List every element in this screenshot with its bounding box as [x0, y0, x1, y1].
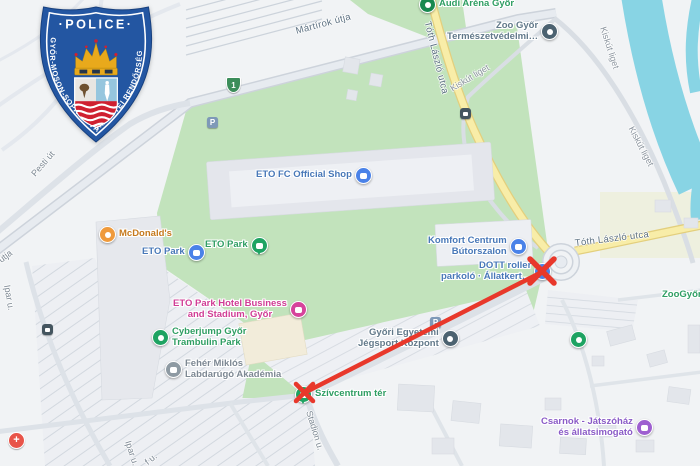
poi-label: DOTT roller parkoló · Állatkert…	[441, 261, 531, 282]
poi-label: Győri Egyetemi Jégsport Központ	[358, 328, 439, 349]
ice-rink-icon	[442, 330, 459, 347]
poi-eto-park-hotel[interactable]: ETO Park Hotel Business and Stadium, Győ…	[173, 299, 307, 320]
hotel-icon	[290, 301, 307, 318]
poi-label: Komfort Centrum Bútorszalon	[428, 236, 507, 257]
health-icon[interactable]: +	[8, 432, 25, 449]
poi-zoo-gyor[interactable]: Zoo Győr Természetvédelmi…	[447, 21, 558, 42]
poi-komfort-centrum[interactable]: Komfort Centrum Bútorszalon	[428, 236, 527, 257]
poi-dott-roller[interactable]: DOTT roller parkoló · Állatkert…	[441, 261, 551, 282]
shopping-bag-icon	[188, 244, 205, 261]
parking-icon[interactable]: P	[207, 117, 218, 128]
poi-cyberjump[interactable]: Cyberjump Győr Trambulin Park	[152, 327, 246, 348]
poi-label: Csarnok - Játszóház és állatsimogató	[541, 417, 633, 438]
poi-label: Cyberjump Győr Trambulin Park	[172, 327, 246, 348]
poi-label: Zoo Győr Természetvédelmi…	[447, 21, 538, 42]
poi-csarnok[interactable]: Csarnok - Játszóház és állatsimogató	[541, 417, 653, 438]
poi-label: ETO Park Hotel Business and Stadium, Győ…	[173, 299, 287, 320]
poi-mcdonalds[interactable]: McDonald's	[99, 226, 172, 243]
academy-icon	[165, 361, 182, 378]
poi-label: Fehér Miklós Labdarúgó Akadémia	[185, 359, 281, 380]
scooter-icon	[534, 263, 551, 280]
trampoline-icon	[152, 329, 169, 346]
figure-emblem	[105, 81, 108, 84]
place-pin-icon	[295, 386, 312, 403]
arena-icon	[419, 0, 436, 13]
poi-feher-miklos[interactable]: Fehér Miklós Labdarúgó Akadémia	[165, 359, 281, 380]
poi-label: ETO FC Official Shop	[256, 170, 352, 181]
poi-paw[interactable]	[570, 331, 587, 348]
poi-eto-fc-shop[interactable]: ETO FC Official Shop	[256, 167, 372, 184]
poi-eto-park-mall[interactable]: ETO Park	[142, 244, 205, 261]
zoo-icon	[541, 23, 558, 40]
poi-jegsport-kozpont[interactable]: Győri Egyetemi Jégsport Központ	[358, 328, 459, 349]
bus-stop-icon[interactable]	[42, 324, 53, 335]
poi-szivcentrum[interactable]: Szívcentrum tér	[295, 386, 386, 403]
shopping-icon	[510, 238, 527, 255]
poi-label: McDonald's	[119, 229, 172, 240]
bus-stop-icon[interactable]	[460, 108, 471, 119]
poi-label: Szívcentrum tér	[315, 389, 386, 400]
restaurant-icon	[99, 226, 116, 243]
poi-label: ETO Park	[205, 240, 248, 251]
badge-title: ·POLICE·	[59, 17, 134, 31]
playhouse-icon	[636, 419, 653, 436]
poi-eto-park-stadium[interactable]: ETO Park	[205, 237, 268, 254]
poi-label: ETO Park	[142, 247, 185, 258]
stadium-pin-icon	[251, 237, 268, 254]
map-canvas[interactable]: Mártírok útja k útja Tóth László utca Tó…	[0, 0, 700, 466]
paw-icon	[570, 331, 587, 348]
poi-label: Audi Aréna Győr	[439, 0, 514, 10]
poi-audi-arena[interactable]: Audi Aréna Győr	[419, 0, 514, 13]
poi-label: ZooGyőr	[662, 290, 700, 301]
police-badge: ·POLICE· GYŐR-MOSON-SOPRON VÁRMEGYEI REN…	[28, 0, 164, 148]
poi-zoogyor-edge[interactable]: ZooGyőr	[662, 290, 700, 301]
shopping-bag-icon	[355, 167, 372, 184]
eagle-emblem	[79, 84, 89, 92]
